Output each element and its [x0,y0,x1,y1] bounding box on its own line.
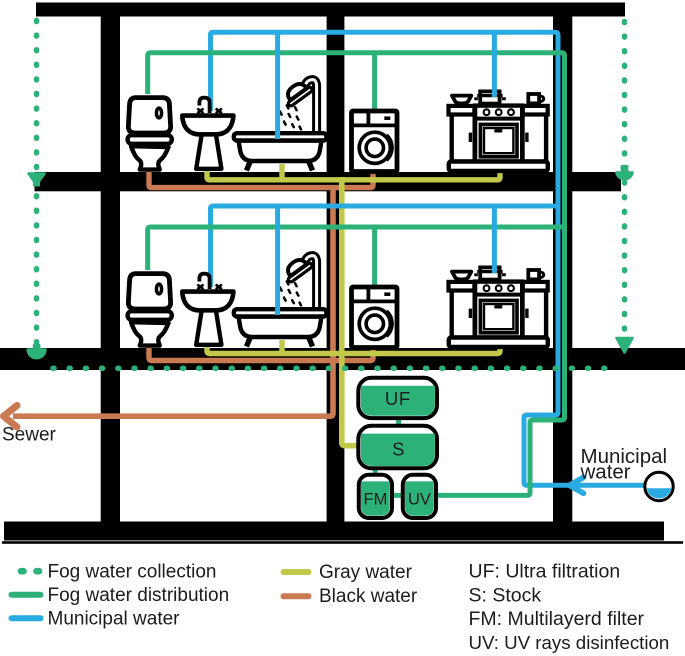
svg-text:Gray water: Gray water [319,562,413,583]
svg-text:UF: Ultra filtration: UF: Ultra filtration [469,561,621,583]
svg-text:UV: UV rays disinfection: UV: UV rays disinfection [469,632,670,653]
svg-text:Black water: Black water [319,586,418,607]
svg-text:Fog water collection: Fog water collection [48,561,217,582]
svg-text:Municipal water: Municipal water [48,608,181,629]
svg-text:UF: UF [385,388,411,409]
svg-text:water: water [580,461,631,484]
svg-text:S: Stock: S: Stock [469,584,542,606]
svg-text:FM: FM [363,491,387,509]
svg-text:Fog water distribution: Fog water distribution [48,585,230,606]
svg-text:S: S [392,438,404,459]
svg-text:FM: Multilayerd filter: FM: Multilayerd filter [469,608,645,630]
svg-text:Sewer: Sewer [2,425,57,446]
svg-text:UV: UV [408,491,431,509]
